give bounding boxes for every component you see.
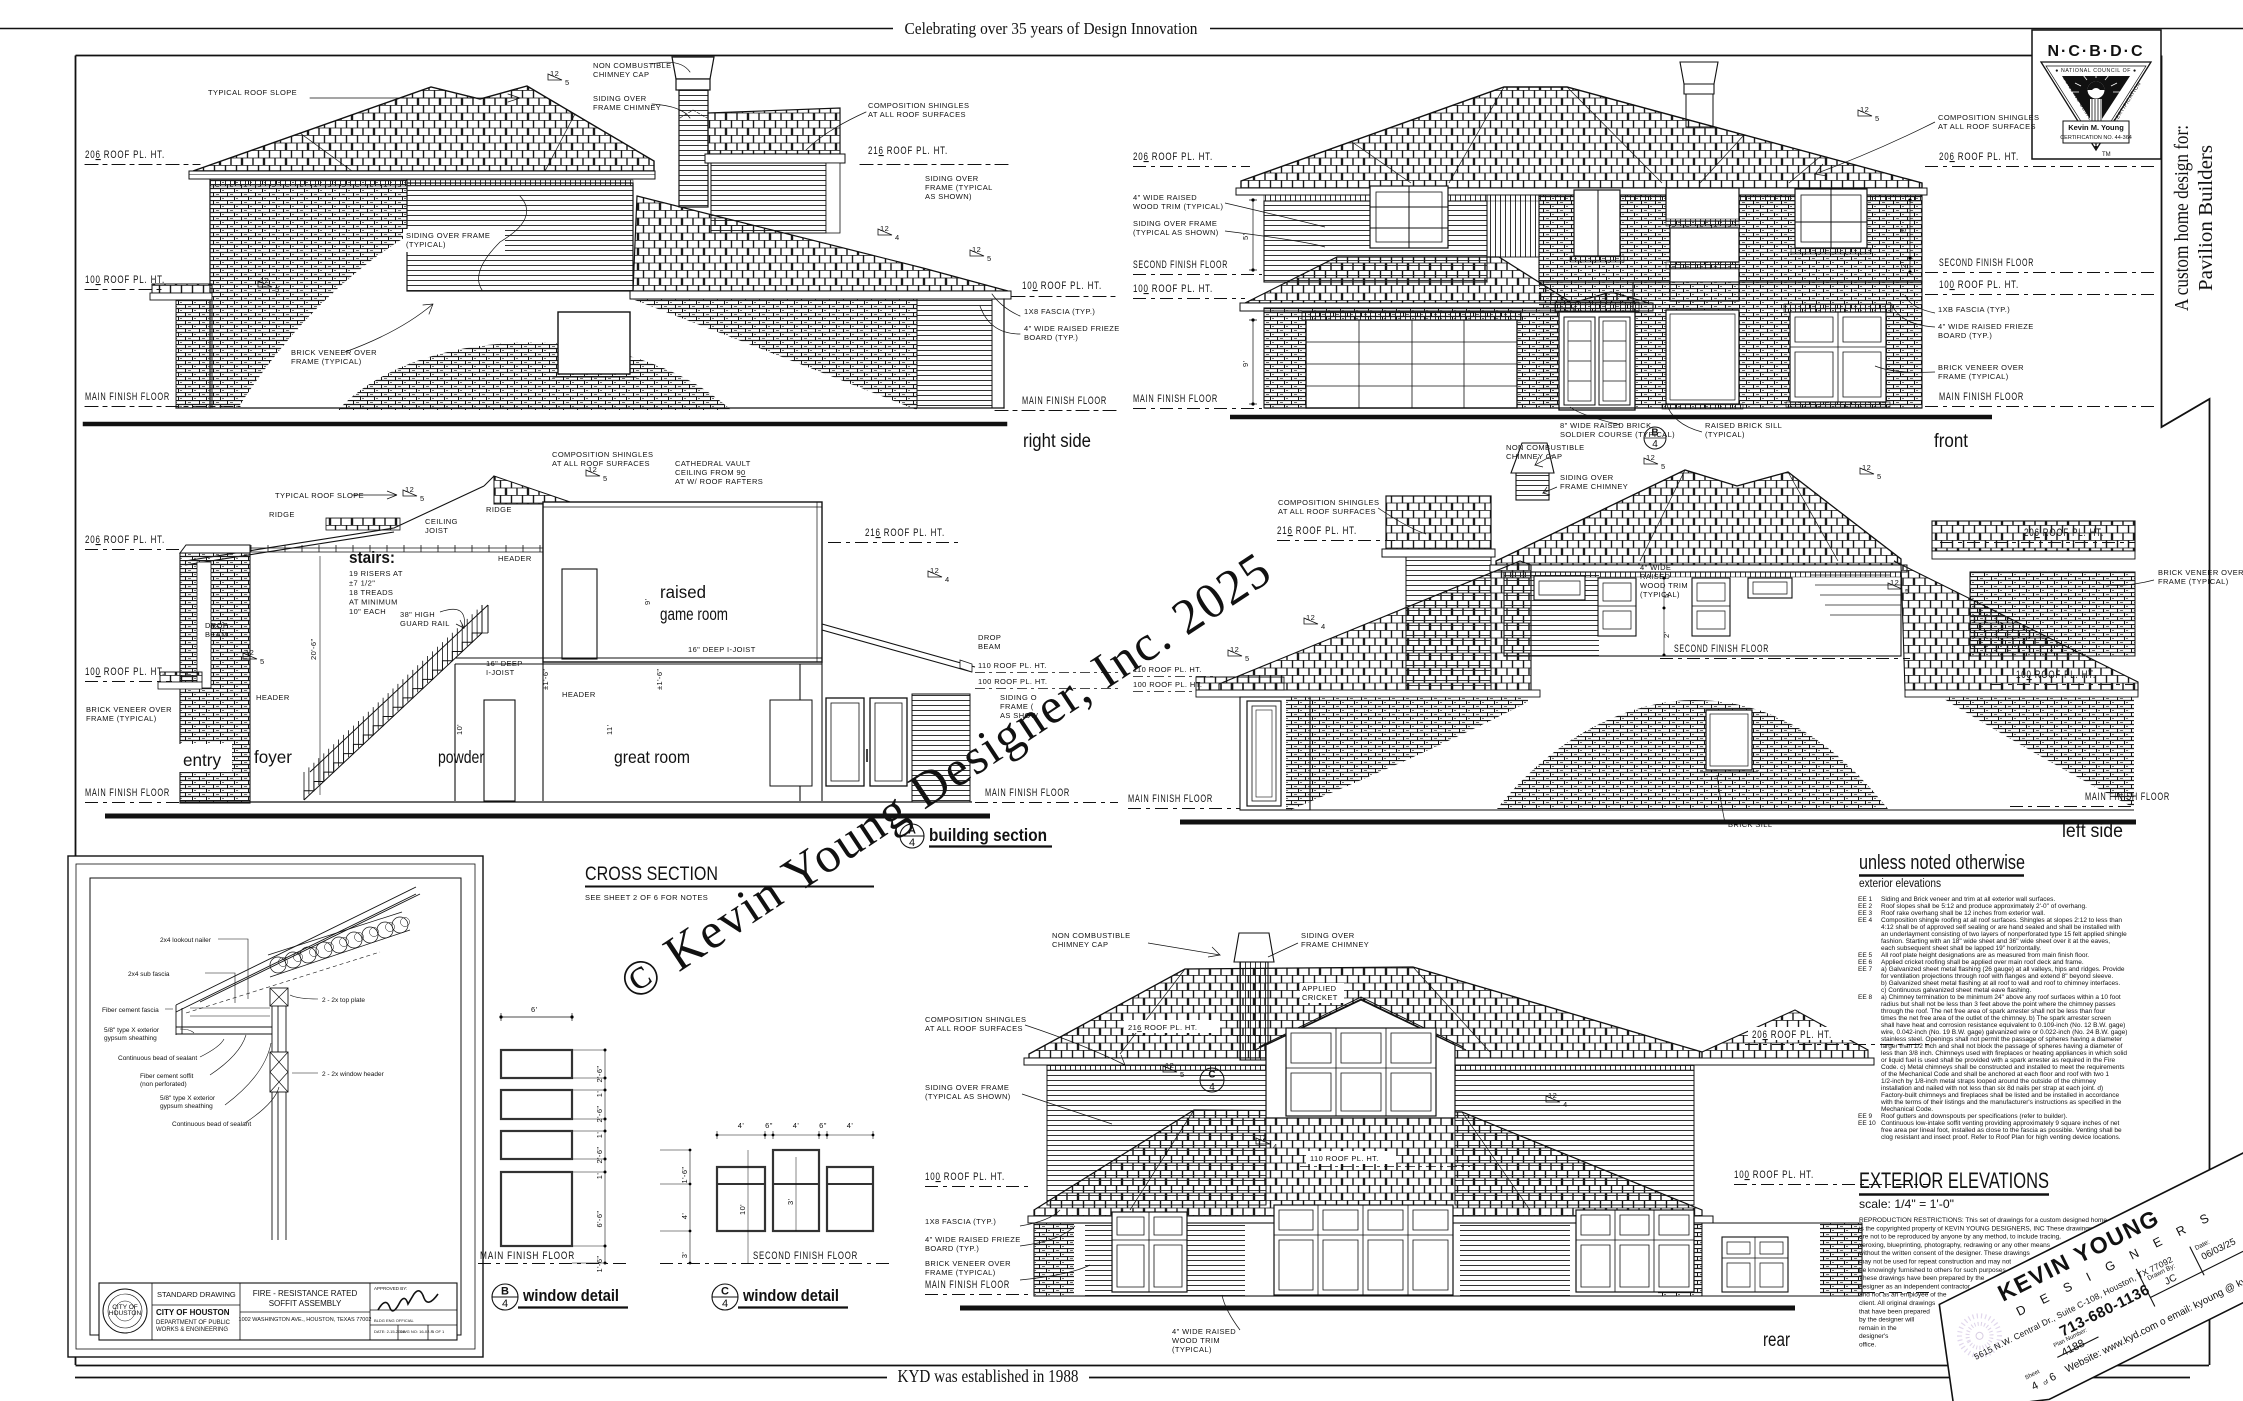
- svg-text:JOIST: JOIST: [425, 526, 448, 535]
- svg-text:100 ROOF PL. HT.: 100 ROOF PL. HT.: [1734, 1169, 1814, 1181]
- svg-text:5: 5: [1180, 1070, 1185, 1079]
- svg-text:shall have heat and corrosion: shall have heat and corrosion resistance…: [1881, 1022, 2125, 1029]
- svg-text:COMPOSITION SHINGLES: COMPOSITION SHINGLES: [1938, 113, 2039, 122]
- svg-text:each subsequent sheet shall be: each subsequent sheet shall be lapped 19…: [1881, 945, 2041, 952]
- svg-text:5: 5: [275, 285, 280, 294]
- svg-text:AT ALL ROOF SURFACES: AT ALL ROOF SURFACES: [1938, 122, 2036, 131]
- svg-text:game room: game room: [660, 604, 728, 624]
- svg-text:an underlayment consisting of: an underlayment consisting of two layers…: [1881, 931, 2127, 938]
- svg-text:4" WIDE RAISED FRIEZE: 4" WIDE RAISED FRIEZE: [925, 1235, 1021, 1244]
- svg-text:MAIN FINISH FLOOR: MAIN FINISH FLOOR: [985, 787, 1070, 799]
- svg-text:AT ALL ROOF SURFACES: AT ALL ROOF SURFACES: [925, 1024, 1023, 1033]
- svg-text:SIDING OVER FRAME: SIDING OVER FRAME: [1133, 219, 1217, 228]
- svg-text:FRAME (TYPICAL): FRAME (TYPICAL): [925, 1268, 996, 1277]
- svg-text:raised: raised: [660, 582, 706, 602]
- svg-text:CERTIFICATION NO. 44-364: CERTIFICATION NO. 44-364: [2060, 135, 2132, 141]
- svg-text:EE 10: EE 10: [1858, 1120, 1876, 1127]
- svg-text:5: 5: [603, 474, 608, 483]
- svg-text:Continuous bead of sealant: Continuous bead of sealant: [172, 1121, 251, 1128]
- svg-text:2x4 sub fascia: 2x4 sub fascia: [128, 971, 170, 978]
- svg-text:right side: right side: [1023, 431, 1091, 452]
- svg-text:Roof rake overhang shall be 12: Roof rake overhang shall be 12 inches fr…: [1881, 910, 2045, 917]
- svg-text:by the designer will: by the designer will: [1859, 1317, 1915, 1324]
- svg-text:216 ROOF PL. HT.: 216 ROOF PL. HT.: [865, 527, 945, 539]
- svg-text:fashion. Starting with an 18": fashion. Starting with an 18" wide sheet…: [1881, 938, 2110, 945]
- svg-text:4: 4: [909, 837, 915, 849]
- svg-text:COMPOSITION SHINGLES: COMPOSITION SHINGLES: [925, 1015, 1026, 1024]
- svg-text:2'-6": 2'-6": [595, 1106, 604, 1123]
- svg-text:EXTERIOR ELEVATIONS: EXTERIOR ELEVATIONS: [1859, 1168, 2049, 1193]
- svg-text:4: 4: [722, 1298, 728, 1310]
- svg-text:left side: left side: [2062, 821, 2123, 842]
- svg-text:CHIMNEY CAP: CHIMNEY CAP: [593, 70, 649, 79]
- svg-text:BRICK VENEER OVER: BRICK VENEER OVER: [291, 348, 377, 357]
- svg-text:AT ALL ROOF SURFACES: AT ALL ROOF SURFACES: [1278, 507, 1376, 516]
- svg-text:5/8" type X exterior: 5/8" type X exterior: [160, 1095, 216, 1102]
- svg-text:4" WIDE: 4" WIDE: [1640, 563, 1671, 572]
- svg-text:4: 4: [1321, 622, 1326, 631]
- svg-text:stainless steel. Openings shal: stainless steel. Openings shall not perm…: [1881, 1036, 2123, 1043]
- svg-text:206 ROOF PL. HT.: 206 ROOF PL. HT.: [1939, 151, 2019, 163]
- svg-text:206 ROOF PL. HT.: 206 ROOF PL. HT.: [85, 534, 165, 546]
- svg-text:FRAME (TYPICAL: FRAME (TYPICAL: [925, 183, 993, 192]
- svg-text:18 TREADS: 18 TREADS: [349, 588, 393, 597]
- svg-text:remain in the: remain in the: [1859, 1325, 1897, 1332]
- svg-text:(TYPICAL AS SHOWN): (TYPICAL AS SHOWN): [925, 1092, 1011, 1101]
- svg-text:designer as an independent con: designer as an independent contractor: [1859, 1283, 1971, 1290]
- svg-text:FRAME CHIMNEY: FRAME CHIMNEY: [593, 103, 661, 112]
- svg-text:1': 1': [595, 1173, 604, 1180]
- svg-text:206 ROOF PL. HT.: 206 ROOF PL. HT.: [85, 149, 165, 161]
- svg-text:through the roof. The net free: through the roof. The net free area of s…: [1881, 1008, 2106, 1015]
- svg-text:is the copyrighted property of: is the copyrighted property of KEVIN YOU…: [1859, 1225, 2093, 1232]
- svg-text:MAIN FINISH FLOOR: MAIN FINISH FLOOR: [1133, 393, 1218, 405]
- svg-text:EE 7: EE 7: [1858, 966, 1872, 973]
- svg-text:designer's: designer's: [1859, 1333, 1889, 1340]
- svg-text:2'-6": 2'-6": [595, 1066, 604, 1083]
- svg-text:wire, 0.042-inch (No. 19 B.W.: wire, 0.042-inch (No. 19 B.W. gage) galv…: [1880, 1029, 2127, 1036]
- svg-text:B: B: [501, 1286, 509, 1298]
- svg-text:These drawings have been prep: These drawings have been prepared by the: [1859, 1275, 1985, 1282]
- svg-text:(TYPICAL): (TYPICAL): [1172, 1345, 1212, 1354]
- svg-text:SECOND FINISH FLOOR: SECOND FINISH FLOOR: [753, 1250, 858, 1262]
- svg-text:BRICK VENEER OVER: BRICK VENEER OVER: [86, 705, 172, 714]
- svg-text:100 ROOF PL. HT.: 100 ROOF PL. HT.: [978, 677, 1047, 686]
- svg-text:5: 5: [987, 254, 992, 263]
- svg-text:BEAM: BEAM: [205, 630, 228, 639]
- svg-text:1': 1': [595, 1091, 604, 1098]
- svg-text:unless noted otherwise: unless noted otherwise: [1859, 852, 2025, 874]
- svg-text:Fiber cement fascia: Fiber cement fascia: [102, 1007, 159, 1014]
- svg-text:6": 6": [765, 1121, 773, 1130]
- svg-text:N·C·B·D·C: N·C·B·D·C: [2047, 43, 2144, 60]
- svg-text:COMPOSITION SHINGLES: COMPOSITION SHINGLES: [552, 450, 653, 459]
- svg-text:c) Continuous galvanized sheet: c) Continuous galvanized sheet metal eav…: [1881, 987, 2032, 994]
- svg-text:CHIMNEY CAP: CHIMNEY CAP: [1506, 452, 1562, 461]
- svg-text:FRAME (TYPICAL): FRAME (TYPICAL): [291, 357, 362, 366]
- svg-text:1 OF 1: 1 OF 1: [432, 1329, 445, 1334]
- svg-text:REPRODUCTION RESTRICTIONS: Thi: REPRODUCTION RESTRICTIONS: This set of d…: [1859, 1217, 2107, 1224]
- svg-text:or liquid fuel is used shall b: or liquid fuel is used shall be provided…: [1881, 1057, 2116, 1064]
- svg-text:client. All original drawin: client. All original drawings: [1859, 1300, 1936, 1307]
- svg-text:100 ROOF PL. HT.: 100 ROOF PL. HT.: [1939, 279, 2019, 291]
- svg-text:NON COMBUSTIBLE: NON COMBUSTIBLE: [1052, 931, 1131, 940]
- svg-text:and not as an employee of t: and not as an employee of the: [1859, 1292, 1947, 1299]
- svg-text:5: 5: [565, 78, 570, 87]
- svg-text:for ventilation projections th: for ventilation projections through roof…: [1881, 973, 2113, 980]
- svg-text:SIDING OVER: SIDING OVER: [1560, 473, 1614, 482]
- svg-text:HEADER: HEADER: [498, 554, 532, 563]
- svg-text:206 ROOF PL. HT.: 206 ROOF PL. HT.: [1752, 1029, 1832, 1041]
- svg-text:110 ROOF PL. HT.: 110 ROOF PL. HT.: [978, 661, 1047, 670]
- svg-text:Applied cricket roofing shall: Applied cricket roofing shall be applied…: [1881, 959, 2084, 966]
- svg-text:that have been prepared: that have been prepared: [1859, 1308, 1930, 1315]
- svg-text:SIDING OVER: SIDING OVER: [593, 94, 647, 103]
- svg-text:DROP: DROP: [978, 633, 1001, 642]
- svg-text:4" WIDE RAISED FRIEZE: 4" WIDE RAISED FRIEZE: [1024, 324, 1120, 333]
- svg-text:exterior elevations: exterior elevations: [1859, 878, 1941, 890]
- svg-text:AT ALL ROOF SURFACES: AT ALL ROOF SURFACES: [868, 110, 966, 119]
- svg-text:2': 2': [1899, 261, 1908, 268]
- svg-text:(TYPICAL): (TYPICAL): [1640, 590, 1680, 599]
- svg-text:4: 4: [1652, 439, 1658, 450]
- svg-text:DEPARTMENT OF PUBLIC: DEPARTMENT OF PUBLIC: [156, 1320, 231, 1326]
- svg-text:1'-6": 1'-6": [595, 1256, 604, 1273]
- svg-text:AS SHOW: AS SHOW: [1000, 711, 1039, 720]
- svg-text:4: 4: [1209, 1082, 1215, 1093]
- svg-text:EE 1: EE 1: [1858, 896, 1872, 903]
- svg-text:EE 3: EE 3: [1858, 910, 1872, 917]
- svg-text:4" WIDE RAISED: 4" WIDE RAISED: [1172, 1327, 1236, 1336]
- svg-text:16" DEEP I-JOIST: 16" DEEP I-JOIST: [688, 645, 756, 654]
- svg-text:STANDARD DRAWING: STANDARD DRAWING: [157, 1290, 236, 1299]
- svg-text:FRAME (TYPICAL): FRAME (TYPICAL): [2158, 577, 2229, 586]
- svg-text:with the terms of their listin: with the terms of their listings and the…: [1880, 1099, 2122, 1106]
- svg-text:216 ROOF PL. HT.: 216 ROOF PL. HT.: [1128, 1023, 1197, 1032]
- svg-text:A custom home design for:: A custom home design for:: [2171, 125, 2193, 311]
- svg-text:FRAME CHIMNEY: FRAME CHIMNEY: [1560, 482, 1628, 491]
- svg-text:±1'-6": ±1'-6": [541, 669, 550, 690]
- svg-text:Kevin M. Young: Kevin M. Young: [2068, 123, 2124, 132]
- svg-text:216 ROOF PL. HT.: 216 ROOF PL. HT.: [868, 145, 948, 157]
- svg-text:BOARD (TYP.): BOARD (TYP.): [925, 1244, 979, 1253]
- svg-text:RAISED: RAISED: [1640, 572, 1671, 581]
- svg-text:4:12 shall be of approved self: 4:12 shall be of approved self sealing o…: [1881, 924, 2121, 931]
- svg-text:GUARD RAIL: GUARD RAIL: [400, 619, 450, 628]
- svg-text:HOUSTON: HOUSTON: [109, 1310, 142, 1317]
- svg-text:FRAME (: FRAME (: [1000, 702, 1034, 711]
- svg-text:I-JOIST: I-JOIST: [486, 668, 515, 677]
- svg-text:5: 5: [1245, 654, 1250, 663]
- svg-text:4" WIDE RAISED: 4" WIDE RAISED: [1133, 193, 1197, 202]
- svg-text:FRAME CHIMNEY: FRAME CHIMNEY: [1301, 940, 1369, 949]
- svg-text:10': 10': [738, 1204, 747, 1215]
- svg-text:MAIN FINISH FLOOR: MAIN FINISH FLOOR: [1128, 793, 1213, 805]
- svg-text:BOARD (TYP.): BOARD (TYP.): [1024, 333, 1078, 342]
- svg-text:FRAME (TYPICAL): FRAME (TYPICAL): [86, 714, 157, 723]
- svg-text:5/8" type X exterior: 5/8" type X exterior: [104, 1027, 160, 1034]
- svg-text:9': 9': [643, 598, 652, 605]
- svg-text:110 ROOF PL. HT.: 110 ROOF PL. HT.: [1133, 665, 1202, 674]
- svg-text:BOARD (TYP.): BOARD (TYP.): [1938, 331, 1992, 340]
- svg-text:SECOND FINISH FLOOR: SECOND FINISH FLOOR: [1674, 643, 1769, 655]
- svg-text:C: C: [721, 1286, 729, 1298]
- svg-text:5: 5: [420, 494, 425, 503]
- svg-text:1002 WASHINGTON AVE., HOUSTON,: 1002 WASHINGTON AVE., HOUSTON, TEXAS 770…: [239, 1317, 372, 1323]
- svg-text:±1'-6": ±1'-6": [655, 669, 664, 690]
- svg-text:AT W/ ROOF RAFTERS: AT W/ ROOF RAFTERS: [675, 477, 763, 486]
- svg-text:16" DEEP: 16" DEEP: [486, 659, 523, 668]
- svg-text:TM: TM: [2102, 152, 2111, 158]
- svg-text:RIDGE: RIDGE: [269, 510, 295, 519]
- svg-text:COMPOSITION SHINGLES: COMPOSITION SHINGLES: [1278, 498, 1379, 507]
- svg-text:be knowingly furnished to othe: be knowingly furnished to others for suc…: [1859, 1267, 2008, 1274]
- svg-text:CRICKET: CRICKET: [1302, 993, 1338, 1002]
- svg-text:38" HIGH: 38" HIGH: [400, 610, 435, 619]
- svg-text:19 RISERS AT: 19 RISERS AT: [349, 569, 403, 578]
- svg-text:EE 4: EE 4: [1858, 917, 1872, 924]
- svg-text:BRICK VENEER OVER: BRICK VENEER OVER: [925, 1259, 1011, 1268]
- svg-text:4: 4: [1563, 1100, 1568, 1109]
- svg-text:NON COMBUSTIBLE: NON COMBUSTIBLE: [1506, 443, 1585, 452]
- svg-text:Pavilion Builders: Pavilion Builders: [2195, 145, 2217, 291]
- svg-text:MAIN FINISH FLOOR: MAIN FINISH FLOOR: [1022, 395, 1107, 407]
- svg-text:AT ALL ROOF SURFACES: AT ALL ROOF SURFACES: [552, 459, 650, 468]
- svg-text:MAIN FINISH FLOOR: MAIN FINISH FLOOR: [85, 787, 170, 799]
- svg-text:8" WIDE RAISED BRICK: 8" WIDE RAISED BRICK: [1560, 421, 1652, 430]
- svg-text:5: 5: [260, 657, 265, 666]
- svg-text:EE 9: EE 9: [1858, 1113, 1872, 1120]
- svg-text:TYPICAL ROOF SLOPE: TYPICAL ROOF SLOPE: [208, 88, 297, 97]
- svg-text:window detail: window detail: [742, 1287, 839, 1305]
- svg-text:1X8 FASCIA (TYP.): 1X8 FASCIA (TYP.): [925, 1217, 996, 1226]
- svg-text:KYD was established in 1988: KYD was established in 1988: [898, 1366, 1079, 1386]
- svg-text:RAISED BRICK SILL: RAISED BRICK SILL: [1705, 421, 1782, 430]
- svg-text:COMPOSITION SHINGLES: COMPOSITION SHINGLES: [868, 101, 969, 110]
- svg-text:C: C: [1208, 1070, 1215, 1081]
- svg-text:SECOND FINISH FLOOR: SECOND FINISH FLOOR: [1939, 257, 2034, 269]
- svg-text:MAIN FINISH FLOOR: MAIN FINISH FLOOR: [925, 1279, 1010, 1291]
- svg-text:AS SHOWN): AS SHOWN): [925, 192, 972, 201]
- svg-text:All roof plate height designat: All roof plate height designations are a…: [1881, 952, 2089, 959]
- svg-text:216 ROOF PL. HT.: 216 ROOF PL. HT.: [1277, 525, 1357, 537]
- svg-text:SIDING OVER FRAME: SIDING OVER FRAME: [925, 1083, 1009, 1092]
- svg-text:b) Galvanized sheet metal flas: b) Galvanized sheet metal flashing at al…: [1881, 980, 2120, 987]
- svg-text:entry: entry: [183, 750, 221, 770]
- svg-text:Composition shingle roofing at: Composition shingle roofing at all roof …: [1881, 917, 2122, 924]
- svg-text:may not be used for repeat co: may not be used for repeat construction …: [1859, 1259, 2011, 1266]
- svg-text:10': 10': [455, 724, 464, 735]
- svg-text:APPROVED BY:: APPROVED BY:: [374, 1286, 407, 1291]
- svg-text:5': 5': [1899, 225, 1908, 232]
- svg-text:6'-6": 6'-6": [595, 1211, 604, 1228]
- svg-text:±7 1/2": ±7 1/2": [349, 579, 375, 588]
- svg-text:CEILING: CEILING: [425, 517, 458, 526]
- svg-text:BEAM: BEAM: [978, 642, 1001, 651]
- svg-text:installation and nailed with n: installation and nailed with not less th…: [1881, 1085, 2103, 1092]
- svg-text:Roof gutters and downspouts pe: Roof gutters and downspouts per specific…: [1881, 1113, 2068, 1120]
- svg-text:are not to be reproduced by an: are not to be reproduced by anyone by an…: [1859, 1234, 2061, 1241]
- svg-text:gypsum sheathing: gypsum sheathing: [104, 1035, 157, 1042]
- svg-text:100 ROOF PL. HT.: 100 ROOF PL. HT.: [85, 666, 165, 678]
- svg-text:3': 3': [680, 1252, 689, 1259]
- svg-text:SOFFIT ASSEMBLY: SOFFIT ASSEMBLY: [269, 1299, 342, 1308]
- svg-text:SECOND FINISH FLOOR: SECOND FINISH FLOOR: [1133, 259, 1228, 271]
- svg-text:SIDING O: SIDING O: [1000, 693, 1037, 702]
- svg-text:4" WIDE RAISED FRIEZE: 4" WIDE RAISED FRIEZE: [1938, 322, 2034, 331]
- svg-text:6': 6': [531, 1005, 538, 1014]
- svg-text:9': 9': [1241, 360, 1250, 367]
- svg-text:2x4 lookout nailer: 2x4 lookout nailer: [160, 937, 212, 944]
- svg-text:1/2-inch by 1/8-inch metal str: 1/2-inch by 1/8-inch metal straps looped…: [1881, 1078, 2097, 1085]
- svg-text:CHIMNEY CAP: CHIMNEY CAP: [1052, 940, 1108, 949]
- svg-text:BRICK SILL: BRICK SILL: [1728, 820, 1772, 829]
- svg-text:larger than 1/2 inch and shall: larger than 1/2 inch and shall not block…: [1881, 1043, 2123, 1050]
- svg-text:without the written consent of: without the written consent of the desig…: [1858, 1250, 2031, 1257]
- svg-text:(TYPICAL): (TYPICAL): [406, 240, 446, 249]
- svg-text:6": 6": [819, 1121, 827, 1130]
- svg-text:foyer: foyer: [254, 747, 292, 767]
- svg-text:10" EACH: 10" EACH: [349, 607, 386, 616]
- svg-text:WOOD TRIM: WOOD TRIM: [1172, 1336, 1220, 1345]
- svg-text:CATHEDRAL VAULT: CATHEDRAL VAULT: [675, 459, 751, 468]
- svg-text:MAIN FINISH FLOOR: MAIN FINISH FLOOR: [1939, 391, 2024, 403]
- svg-text:5: 5: [1905, 587, 1910, 596]
- svg-text:powder: powder: [438, 747, 484, 767]
- svg-text:4': 4': [738, 1121, 745, 1130]
- svg-text:100 ROOF PL. HT.: 100 ROOF PL. HT.: [1133, 283, 1213, 295]
- svg-text:a) Chimney termination to be m: a) Chimney termination to be minimum 24"…: [1881, 994, 2121, 1001]
- svg-text:110 ROOF PL. HT.: 110 ROOF PL. HT.: [1310, 1154, 1379, 1163]
- svg-text:CITY OF HOUSTON: CITY OF HOUSTON: [156, 1308, 230, 1317]
- svg-text:radius but shall not be less t: radius but shall not be less than 3 feet…: [1881, 1001, 2116, 1008]
- svg-text:2': 2': [1662, 631, 1671, 638]
- svg-text:5: 5: [1661, 462, 1666, 471]
- svg-text:(non perforated): (non perforated): [140, 1081, 187, 1088]
- svg-text:window detail: window detail: [522, 1287, 619, 1305]
- svg-text:100 ROOF PL. HT.: 100 ROOF PL. HT.: [1133, 680, 1202, 689]
- svg-text:5': 5': [1662, 591, 1671, 598]
- svg-text:scale: 1/4" = 1'-0": scale: 1/4" = 1'-0": [1859, 1197, 1954, 1211]
- svg-text:CROSS SECTION: CROSS SECTION: [585, 863, 718, 885]
- svg-text:SIDING OVER: SIDING OVER: [925, 174, 979, 183]
- svg-text:WOOD TRIM (TYPICAL): WOOD TRIM (TYPICAL): [1133, 202, 1223, 211]
- svg-text:BRICK VENEER OVER: BRICK VENEER OVER: [2158, 568, 2243, 577]
- svg-text:less than 3/8 inch. Chimneys u: less than 3/8 inch. Chimneys used with f…: [1881, 1050, 2127, 1057]
- svg-text:4: 4: [945, 575, 950, 584]
- svg-text:Continuous bead of sealant: Continuous bead of sealant: [118, 1055, 197, 1062]
- svg-text:TYPICAL ROOF SLOPE: TYPICAL ROOF SLOPE: [275, 491, 364, 500]
- svg-text:100 ROOF PL. HT.: 100 ROOF PL. HT.: [1022, 280, 1102, 292]
- svg-text:EE 2: EE 2: [1858, 903, 1872, 910]
- svg-text:5: 5: [1877, 472, 1882, 481]
- svg-text:2 - 2x window header: 2 - 2x window header: [322, 1071, 385, 1078]
- svg-text:Siding and Brick veneer and tr: Siding and Brick veneer and trim at all …: [1881, 896, 2055, 903]
- svg-text:MAIN FINISH FLOOR: MAIN FINISH FLOOR: [480, 1250, 575, 1262]
- svg-text:2'-6": 2'-6": [595, 1147, 604, 1164]
- svg-text:1'-6": 1'-6": [680, 1167, 689, 1184]
- svg-text:20'-6": 20'-6": [309, 638, 318, 660]
- svg-text:EE 6: EE 6: [1858, 959, 1872, 966]
- svg-text:APPLIED: APPLIED: [1302, 984, 1337, 993]
- svg-text:stairs:: stairs:: [349, 548, 395, 567]
- svg-text:Fiber cement soffit: Fiber cement soffit: [140, 1073, 194, 1080]
- svg-text:A: A: [908, 825, 916, 837]
- svg-text:SIDING OVER FRAME: SIDING OVER FRAME: [406, 231, 490, 240]
- svg-text:great room: great room: [614, 747, 690, 767]
- svg-text:front: front: [1934, 431, 1969, 452]
- svg-text:HEADER: HEADER: [256, 693, 290, 702]
- svg-text:FRAME (TYPICAL): FRAME (TYPICAL): [1938, 372, 2009, 381]
- svg-text:a) Galvanized sheet metal flas: a) Galvanized sheet metal flashing (26 g…: [1881, 966, 2125, 973]
- svg-text:3': 3': [786, 1198, 795, 1205]
- svg-text:1': 1': [595, 1132, 604, 1139]
- svg-text:5': 5': [1241, 233, 1250, 240]
- svg-text:EE 5: EE 5: [1858, 952, 1872, 959]
- svg-text:SEE SHEET 2 OF 6 FOR NOTES: SEE SHEET 2 OF 6 FOR NOTES: [585, 893, 708, 902]
- svg-text:times the net free area of the: times the net free area of the outlet of…: [1881, 1015, 2111, 1022]
- svg-text:5: 5: [1875, 114, 1880, 123]
- svg-text:4': 4': [847, 1121, 854, 1130]
- svg-text:rear: rear: [1763, 1330, 1791, 1351]
- svg-text:4: 4: [895, 233, 900, 242]
- svg-text:RIDGE: RIDGE: [486, 505, 512, 514]
- svg-text:DROP: DROP: [205, 621, 228, 630]
- svg-text:MAIN FINISH FLOOR: MAIN FINISH FLOOR: [85, 391, 170, 403]
- svg-text:xeroxing, blueprinting, photog: xeroxing, blueprinting, photography, red…: [1859, 1242, 2051, 1249]
- svg-text:of the Mechanical Code and sha: of the Mechanical Code and shall be anch…: [1881, 1071, 2109, 1078]
- svg-text:Celebrating over 35 years of D: Celebrating over 35 years of Design Inno…: [905, 19, 1198, 38]
- svg-text:office.: office.: [1859, 1342, 1876, 1349]
- svg-text:Mechanical Code.: Mechanical Code.: [1881, 1106, 1933, 1113]
- svg-text:BLDG ENG OFFICIAL: BLDG ENG OFFICIAL: [374, 1318, 415, 1323]
- svg-text:Continuous low-intake soffit v: Continuous low-intake soffit venting pro…: [1881, 1120, 2120, 1127]
- svg-text:4: 4: [502, 1298, 508, 1310]
- svg-text:2 - 2x top plate: 2 - 2x top plate: [322, 997, 365, 1004]
- svg-text:Roof slopes shall be 5:12 and: Roof slopes shall be 5:12 and produce ap…: [1881, 903, 2087, 910]
- svg-text:HEADER: HEADER: [562, 690, 596, 699]
- svg-text:100 ROOF PL. HT.: 100 ROOF PL. HT.: [925, 1171, 1005, 1183]
- svg-text:4': 4': [680, 1213, 689, 1220]
- svg-text:Factory-built chimneys and fir: Factory-built chimneys and fireplaces sh…: [1881, 1092, 2119, 1099]
- svg-text:1X8 FASCIA (TYP.): 1X8 FASCIA (TYP.): [1024, 307, 1095, 316]
- svg-text:B: B: [1651, 428, 1658, 439]
- svg-text:Code. c) Metal chimneys shall: Code. c) Metal chimneys shall be constru…: [1881, 1064, 2125, 1071]
- svg-text:FIRE - RESISTANCE RATED: FIRE - RESISTANCE RATED: [253, 1289, 358, 1298]
- svg-text:CEILING FROM 90: CEILING FROM 90: [675, 468, 746, 477]
- svg-text:DWG NO: 16-02-R: DWG NO: 16-02-R: [400, 1329, 434, 1334]
- svg-text:206 ROOF PL. HT.: 206 ROOF PL. HT.: [1133, 151, 1213, 163]
- svg-text:4': 4': [793, 1121, 800, 1130]
- svg-text:BRICK VENEER OVER: BRICK VENEER OVER: [1938, 363, 2024, 372]
- svg-text:WORKS & ENGINEERING: WORKS & ENGINEERING: [156, 1327, 228, 1333]
- svg-text:building section: building section: [929, 825, 1047, 845]
- svg-text:4: 4: [1273, 1142, 1278, 1151]
- svg-text:gypsum sheathing: gypsum sheathing: [160, 1103, 213, 1110]
- svg-text:EE 8: EE 8: [1858, 994, 1872, 1001]
- svg-text:11': 11': [605, 724, 614, 735]
- svg-text:1XB FASCIA (TYP.): 1XB FASCIA (TYP.): [1938, 305, 2010, 314]
- svg-text:AT MINIMUM: AT MINIMUM: [349, 598, 398, 607]
- svg-text:free area per lineal foot, ins: free area per lineal foot, installed as …: [1881, 1127, 2122, 1134]
- svg-text:(TYPICAL AS SHOWN): (TYPICAL AS SHOWN): [1133, 228, 1219, 237]
- svg-text:clog resistant and insect proo: clog resistant and insect proof. Refer t…: [1881, 1134, 2121, 1141]
- svg-text:(TYPICAL): (TYPICAL): [1705, 430, 1745, 439]
- svg-text:SIDING OVER: SIDING OVER: [1301, 931, 1355, 940]
